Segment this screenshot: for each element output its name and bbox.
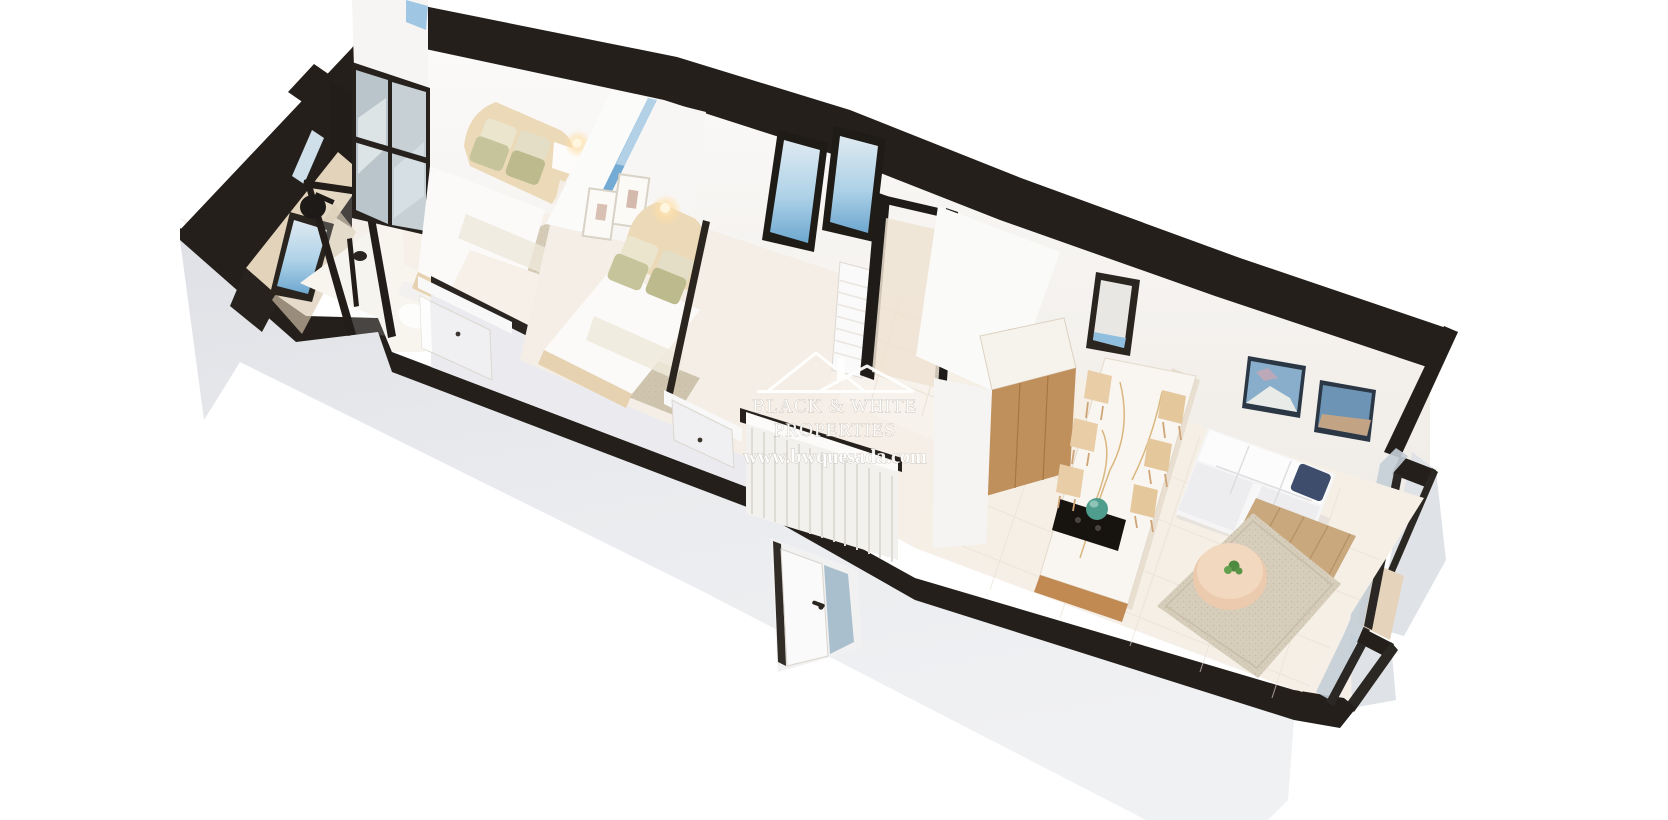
svg-text:www.bwquesada.com: www.bwquesada.com [743, 446, 927, 468]
svg-text:PROPERTIES: PROPERTIES [774, 420, 897, 441]
svg-text:BLACK & WHITE: BLACK & WHITE [752, 396, 917, 417]
